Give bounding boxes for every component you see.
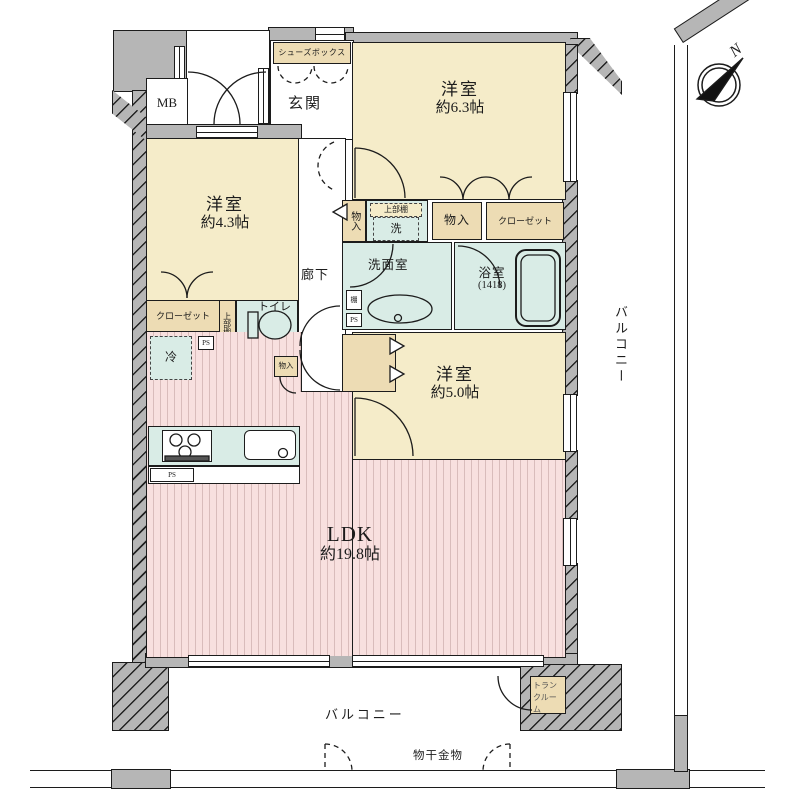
western3-size: 約5.0帖 — [431, 385, 480, 402]
monoire-top-label: 物入 — [444, 214, 470, 228]
floor-plan: MB シューズボックス 玄関 カウンター 洋室 約6.3帖 洋室 約4.3帖 廊… — [0, 0, 800, 800]
ldk-name: LDK — [327, 522, 373, 546]
compass-outer-circle — [698, 64, 740, 106]
western2-label: 洋室 約4.3帖 — [155, 195, 295, 232]
toilet-label: トイレ — [258, 301, 291, 314]
balcony-right-parapet-foot — [674, 715, 688, 772]
western1-balcony-window — [563, 92, 577, 182]
ps-washroom-box: PS — [346, 313, 362, 327]
bathroom-size: (1418) — [478, 280, 506, 292]
top-right-angled-wall — [674, 0, 760, 43]
laundry-arc-right — [483, 744, 510, 771]
upper-shelf-wash: 上部棚 — [370, 203, 422, 217]
bathroom-name: 浴室 — [478, 266, 505, 280]
monoire-vertical: 物入 — [342, 200, 366, 242]
western2-name: 洋室 — [206, 195, 244, 215]
fridge-box: 冷 — [150, 336, 192, 380]
balcony-bottom-pillar-right — [616, 769, 690, 789]
top-wall-window — [315, 27, 345, 41]
balcony-bottom-pillar-left — [111, 769, 171, 789]
closet-top: クローゼット — [486, 202, 564, 240]
balcony-bottom-label: バルコニー — [325, 708, 405, 723]
corridor — [298, 138, 346, 392]
ldk-balcony-slider-right — [352, 655, 544, 667]
ps-fridge-box: PS — [198, 336, 214, 350]
compass-needle — [697, 58, 743, 101]
kitchen-stove — [162, 430, 212, 462]
ps-washroom-label: PS — [350, 316, 358, 324]
ldk-size: 約19.8帖 — [320, 546, 380, 564]
western1-name: 洋室 — [441, 80, 479, 100]
washer-space: 上部棚 洗 — [366, 200, 428, 242]
western2-size: 約4.3帖 — [201, 215, 250, 232]
laundry-hardware-label: 物干金物 — [413, 750, 463, 763]
monoire-vertical-label: 物入 — [348, 211, 360, 231]
closet-top-label: クローゼット — [498, 216, 552, 226]
compass-inner-circle — [702, 68, 736, 102]
genkan-label: 玄関 — [288, 96, 322, 113]
monoire-small: 物入 — [274, 356, 298, 377]
ldk-floor-left — [146, 332, 302, 658]
balcony-right-parapet — [674, 45, 688, 772]
ldk-balcony-slider-left — [188, 655, 330, 667]
western3-balcony-window — [563, 394, 577, 452]
western-room-1 — [352, 42, 566, 200]
ldk-balcony-window — [563, 518, 577, 566]
western2-top-window — [196, 126, 258, 138]
upper-shelf-wash-label: 上部棚 — [384, 205, 408, 214]
monoire-small-label: 物入 — [279, 362, 294, 371]
ldk-label: LDK 約19.8帖 — [280, 522, 420, 565]
wall-bottom-left-block — [112, 662, 169, 731]
closet-left: クローゼット — [146, 300, 220, 332]
balcony-right-label: バルコニー — [612, 305, 627, 385]
shelf-box: 棚 — [346, 290, 362, 310]
shoes-box: シューズボックス — [273, 42, 351, 64]
monoire-top: 物入 — [432, 202, 482, 240]
western1-label: 洋室 約6.3帖 — [390, 80, 530, 117]
washer-box: 洗 — [373, 217, 419, 241]
ps-fridge-label: PS — [202, 339, 210, 347]
washroom-label: 洗面室 — [368, 258, 409, 272]
laundry-arc-left — [325, 744, 352, 771]
trunk-room-label: トランクルーム — [531, 677, 565, 716]
kitchen-sink — [244, 430, 296, 460]
closet-left-label: クローゼット — [156, 311, 210, 321]
fridge-label: 冷 — [165, 351, 177, 365]
western1-size: 約6.3帖 — [436, 100, 485, 117]
shelf-label: 棚 — [351, 296, 358, 304]
porch-door-leaf-right — [258, 68, 269, 124]
western3-name: 洋室 — [436, 365, 474, 385]
bathroom-label: 浴室 (1418) — [462, 266, 522, 292]
compass-n-label: N — [726, 41, 746, 62]
mb-label: MB — [157, 96, 177, 111]
washer-label: 洗 — [391, 223, 402, 236]
shoes-box-label: シューズボックス — [278, 48, 345, 57]
ps-kitchen-box: PS — [150, 468, 194, 482]
corridor-label: 廊下 — [301, 268, 329, 283]
compass-needle-line — [697, 58, 743, 99]
trunk-room: トランクルーム — [530, 676, 566, 714]
mb-room: MB — [146, 78, 188, 128]
ps-kitchen-label: PS — [168, 471, 176, 479]
western3-label: 洋室 約5.0帖 — [385, 365, 525, 402]
